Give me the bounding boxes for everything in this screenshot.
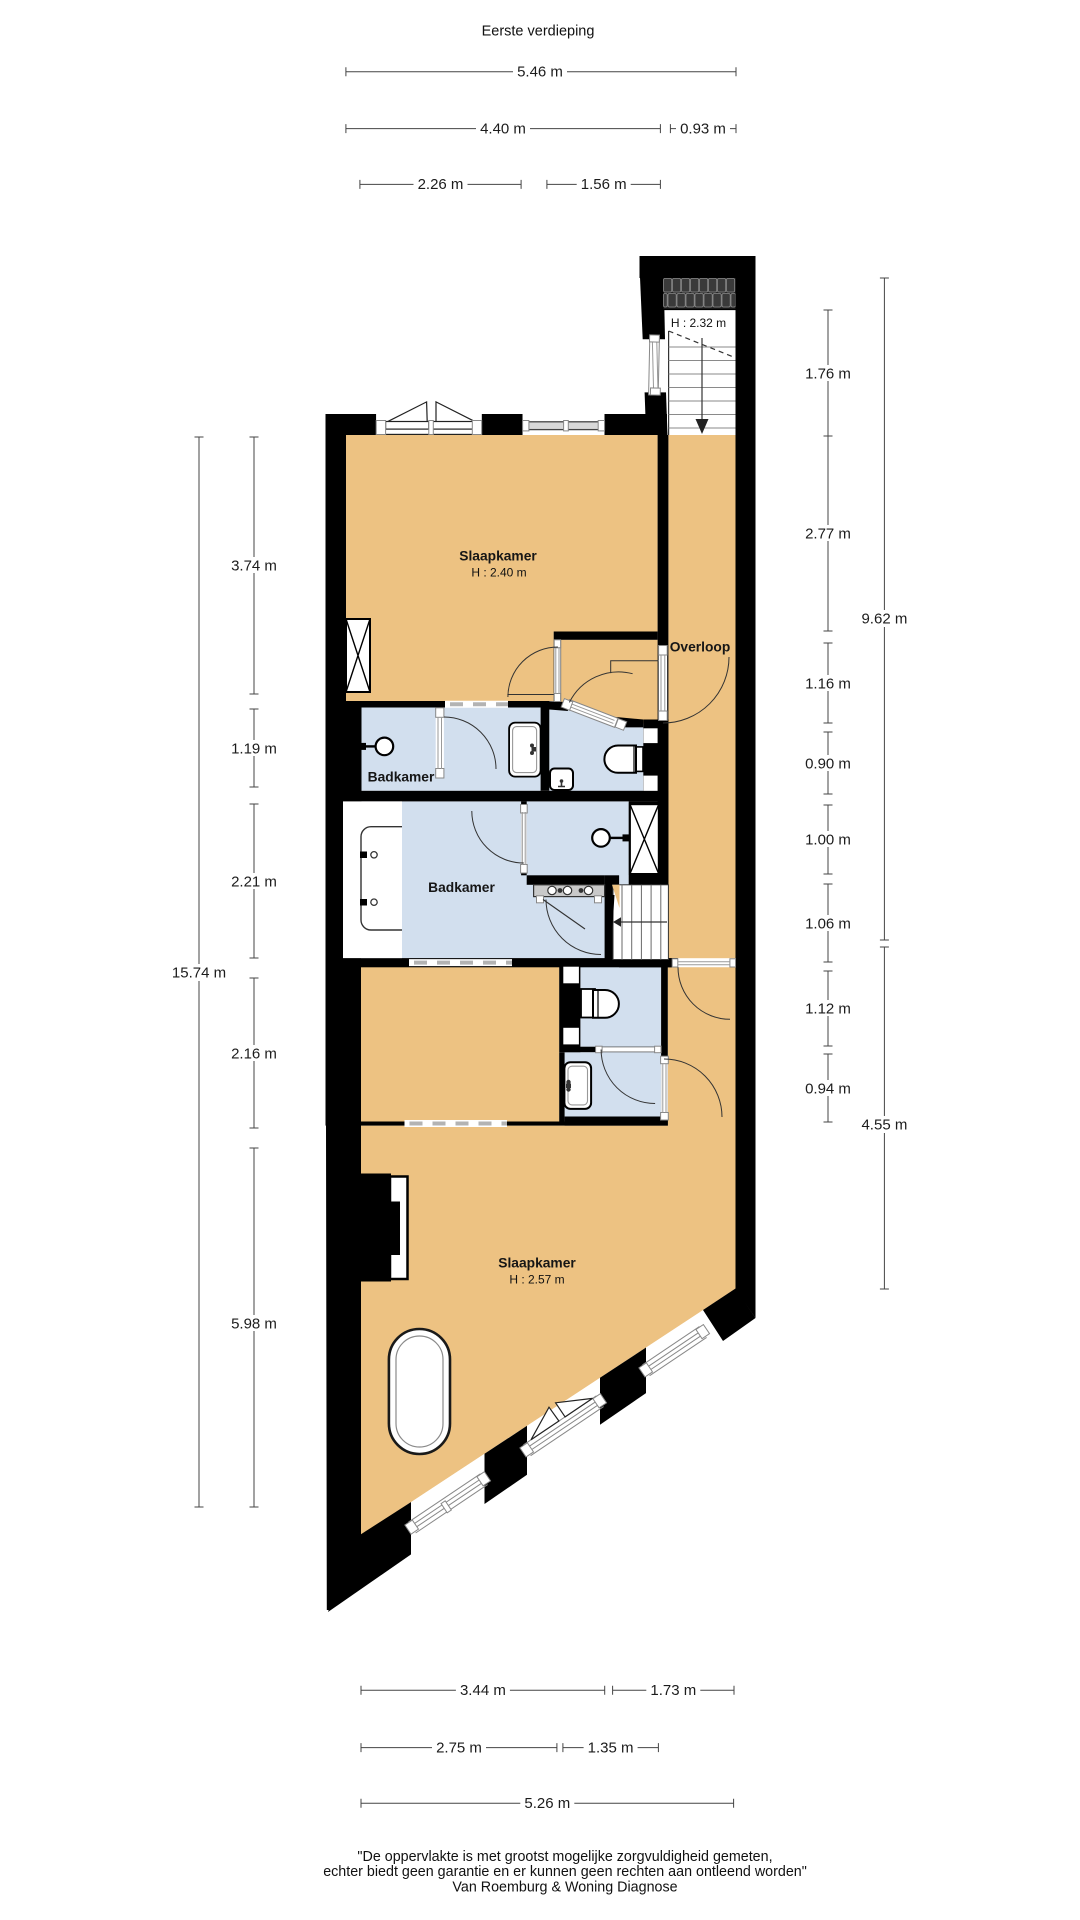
svg-text:H : 2.57 m: H : 2.57 m [509,1273,564,1287]
svg-text:1.00 m: 1.00 m [805,832,851,849]
svg-text:2.26 m: 2.26 m [418,176,464,193]
svg-text:2.16 m: 2.16 m [231,1046,277,1063]
svg-text:H : 2.32 m: H : 2.32 m [671,316,726,330]
svg-text:5.98 m: 5.98 m [231,1316,277,1333]
svg-text:1.73 m: 1.73 m [650,1682,696,1699]
svg-text:2.75 m: 2.75 m [436,1739,482,1756]
svg-text:5.26 m: 5.26 m [524,1795,570,1812]
svg-text:Slaapkamer: Slaapkamer [498,1256,576,1271]
svg-text:4.55 m: 4.55 m [861,1117,907,1134]
svg-text:1.56 m: 1.56 m [581,176,627,193]
svg-text:1.06 m: 1.06 m [805,916,851,933]
svg-text:0.94 m: 0.94 m [805,1081,851,1098]
svg-text:1.76 m: 1.76 m [805,366,851,383]
svg-text:"De oppervlakte is met grootst: "De oppervlakte is met grootst mogelijke… [357,1849,772,1865]
svg-text:Badkamer: Badkamer [368,770,435,785]
svg-text:echter biedt geen garantie en: echter biedt geen garantie en er kunnen … [323,1864,807,1880]
svg-text:3.44 m: 3.44 m [460,1682,506,1699]
svg-text:1.19 m: 1.19 m [231,741,277,758]
svg-text:Slaapkamer: Slaapkamer [459,549,537,564]
svg-text:15.74 m: 15.74 m [172,965,226,982]
svg-text:3.74 m: 3.74 m [231,558,277,575]
svg-text:0.90 m: 0.90 m [805,756,851,773]
svg-text:0.93 m: 0.93 m [680,120,726,137]
svg-text:4.40 m: 4.40 m [480,120,526,137]
svg-text:Overloop: Overloop [670,640,731,655]
svg-text:Badkamer: Badkamer [428,880,495,895]
svg-text:9.62 m: 9.62 m [861,611,907,628]
svg-text:Eerste verdieping: Eerste verdieping [482,24,595,40]
svg-text:5.46 m: 5.46 m [517,64,563,81]
svg-text:1.16 m: 1.16 m [805,676,851,693]
svg-text:1.12 m: 1.12 m [805,1001,851,1018]
svg-text:2.21 m: 2.21 m [231,874,277,891]
svg-text:2.77 m: 2.77 m [805,526,851,543]
svg-text:1.35 m: 1.35 m [588,1739,634,1756]
svg-text:H : 2.40 m: H : 2.40 m [471,566,526,580]
svg-text:Van Roemburg & Woning Diagnose: Van Roemburg & Woning Diagnose [452,1880,677,1896]
